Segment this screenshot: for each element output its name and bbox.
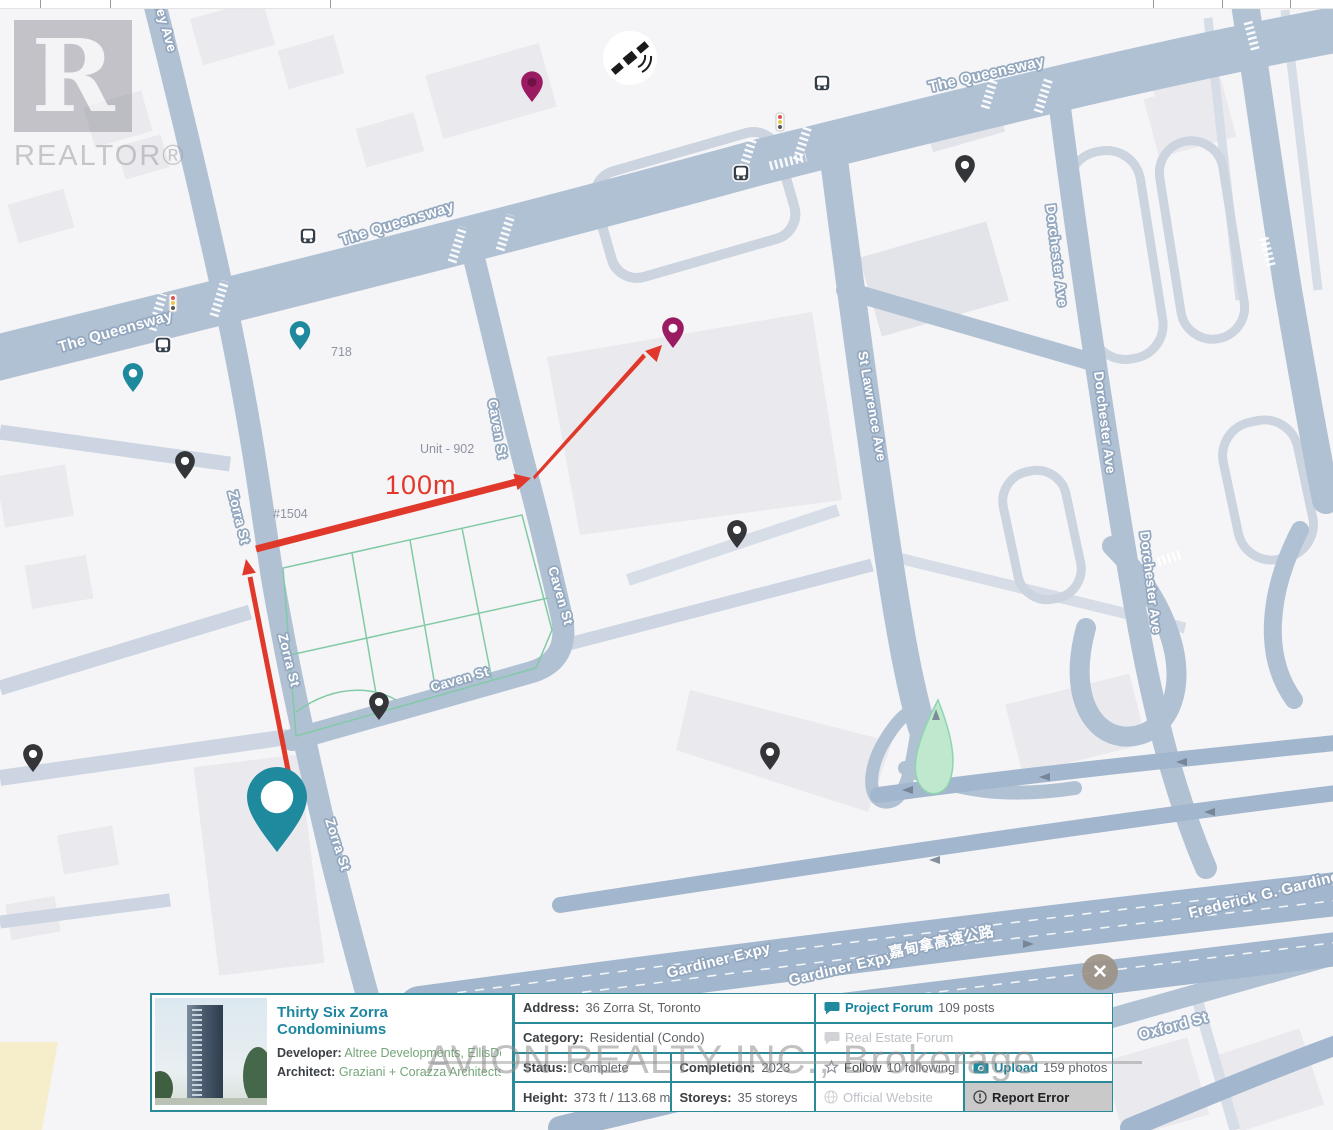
property-actions-grid: Project Forum 109 posts Real Estate Foru…: [815, 993, 1113, 1112]
svg-text:#1504: #1504: [273, 507, 308, 521]
close-icon: ✕: [1092, 961, 1108, 984]
follow-button[interactable]: Follow 10 following: [815, 1053, 964, 1083]
map-canvas[interactable]: The Queensway The Queensway The Queenswa…: [0, 0, 1333, 1130]
architect-row: Architect: Graziani + Corazza Architects: [277, 1063, 501, 1082]
map-screenshot: The Queensway The Queensway The Queenswa…: [0, 0, 1333, 1130]
satellite-icon[interactable]: [603, 31, 657, 85]
globe-icon: [824, 1090, 838, 1104]
storeys-cell: Storeys:35 storeys: [671, 1082, 815, 1112]
camera-icon: [973, 1061, 989, 1074]
distance-label: 100m: [385, 470, 457, 500]
property-info-panel: Thirty Six Zorra Condominiums Developer:…: [150, 993, 1113, 1112]
address-cell: Address:36 Zorra St, Toronto: [514, 993, 815, 1023]
top-edge-strip: [0, 0, 1333, 9]
forum-icon: [824, 1001, 840, 1015]
project-forum-button[interactable]: Project Forum 109 posts: [815, 993, 1113, 1023]
real-estate-forum-button[interactable]: Real Estate Forum: [815, 1023, 1113, 1053]
property-summary-card: Thirty Six Zorra Condominiums Developer:…: [150, 993, 514, 1112]
completion-cell: Completion:2023: [671, 1053, 815, 1083]
star-icon: [824, 1060, 839, 1074]
property-thumbnail[interactable]: [155, 998, 267, 1105]
architect-link[interactable]: Graziani + Corazza Architects: [339, 1065, 501, 1079]
property-details-grid: Address:36 Zorra St, Toronto Category:Re…: [514, 993, 815, 1112]
developer-row: Developer: Altree Developments, EllisDon…: [277, 1044, 501, 1063]
svg-text:Unit - 902: Unit - 902: [420, 442, 474, 456]
svg-text:718: 718: [331, 345, 352, 359]
forum-icon: [824, 1031, 840, 1045]
developer-link[interactable]: Altree Developments, EllisDon ...: [344, 1046, 501, 1060]
official-website-button[interactable]: Official Website: [815, 1082, 964, 1112]
close-button[interactable]: ✕: [1082, 954, 1118, 990]
status-cell: Status:Complete: [514, 1053, 671, 1083]
error-icon: [973, 1090, 987, 1104]
report-error-button[interactable]: Report Error: [964, 1082, 1113, 1112]
category-cell: Category:Residential (Condo): [514, 1023, 815, 1053]
height-cell: Height:373 ft / 113.68 m: [514, 1082, 671, 1112]
upload-button[interactable]: Upload 159 photos: [964, 1053, 1113, 1083]
property-title[interactable]: Thirty Six Zorra Condominiums: [277, 1004, 501, 1038]
